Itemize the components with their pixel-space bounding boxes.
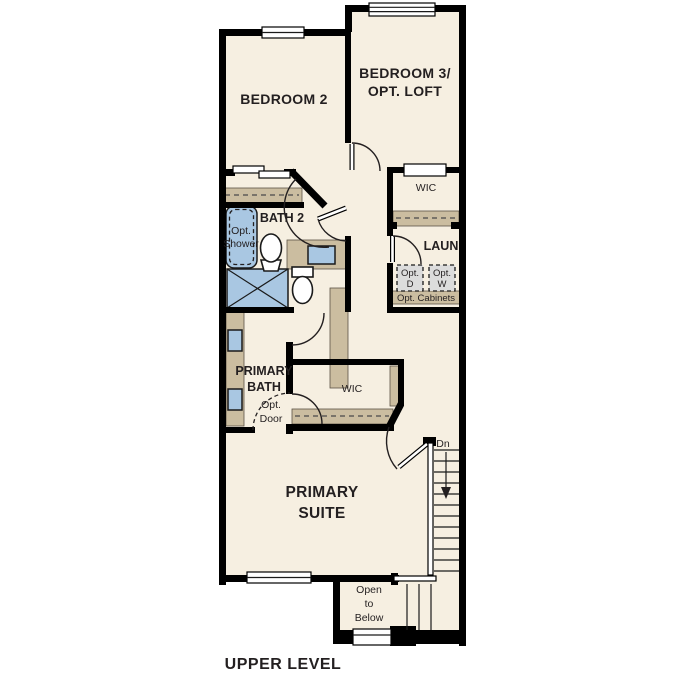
bedroom3-label-line2: OPT. LOFT [368, 83, 442, 99]
open-to-below-line2: to [365, 598, 374, 610]
wic-upper-label: WIC [416, 182, 437, 194]
toilet-bath2-bowl [261, 234, 282, 262]
page-title: UPPER LEVEL [225, 656, 342, 673]
stairs-down-label: Dn [436, 438, 450, 450]
laundry-label: LAUN [424, 239, 459, 253]
cased-opening-wic-upper [404, 164, 446, 176]
opt-washer-label-line2: W [438, 279, 447, 290]
open-to-below-line3: Below [355, 612, 384, 624]
primary-bath-label-line2: BATH [247, 380, 281, 394]
primary-sink-2 [228, 389, 242, 410]
primary-suite-label-line1: PRIMARY [285, 484, 358, 501]
primary-suite-label-line2: SUITE [298, 505, 345, 522]
toilet-primary-tank [292, 267, 313, 277]
bedroom3-label-line1: BEDROOM 3/ [359, 65, 451, 81]
bath2-sink [308, 246, 335, 264]
opt-door-label-line2: Door [260, 413, 283, 425]
toilet-primary-bowl [293, 277, 313, 304]
opt-shower-label-line2: Shower [223, 238, 259, 250]
bath2-label: BATH 2 [260, 211, 304, 225]
primary-bath-label-line1: PRIMARY [235, 364, 293, 378]
window-bedroom3 [369, 3, 435, 16]
opt-cabinets-label: Opt. Cabinets [397, 293, 455, 304]
opt-door-label-line1: Opt. [261, 399, 281, 411]
bypass-door-2 [259, 171, 290, 178]
opt-dryer-label-line1: Opt. [401, 268, 419, 279]
floor-plan-page: BEDROOM 2 BEDROOM 3/ OPT. LOFT WIC BATH … [0, 0, 687, 687]
opt-washer-label-line1: Opt. [433, 268, 451, 279]
primary-sink-1 [228, 330, 242, 351]
window-open-below [353, 629, 391, 645]
wic-primary-side-shelf [390, 366, 399, 406]
opt-shower-tub [226, 206, 257, 268]
bedroom2-label: BEDROOM 2 [240, 91, 328, 107]
wic-primary-label: WIC [342, 383, 363, 395]
open-to-below-line1: Open [356, 584, 382, 596]
stair-rail-lower [394, 576, 436, 581]
opt-dryer-label-line2: D [407, 279, 414, 290]
stair-rail [428, 443, 433, 575]
opt-shower-label-line1: Opt. [231, 225, 251, 237]
floor-plan-svg: BEDROOM 2 BEDROOM 3/ OPT. LOFT WIC BATH … [0, 0, 687, 687]
